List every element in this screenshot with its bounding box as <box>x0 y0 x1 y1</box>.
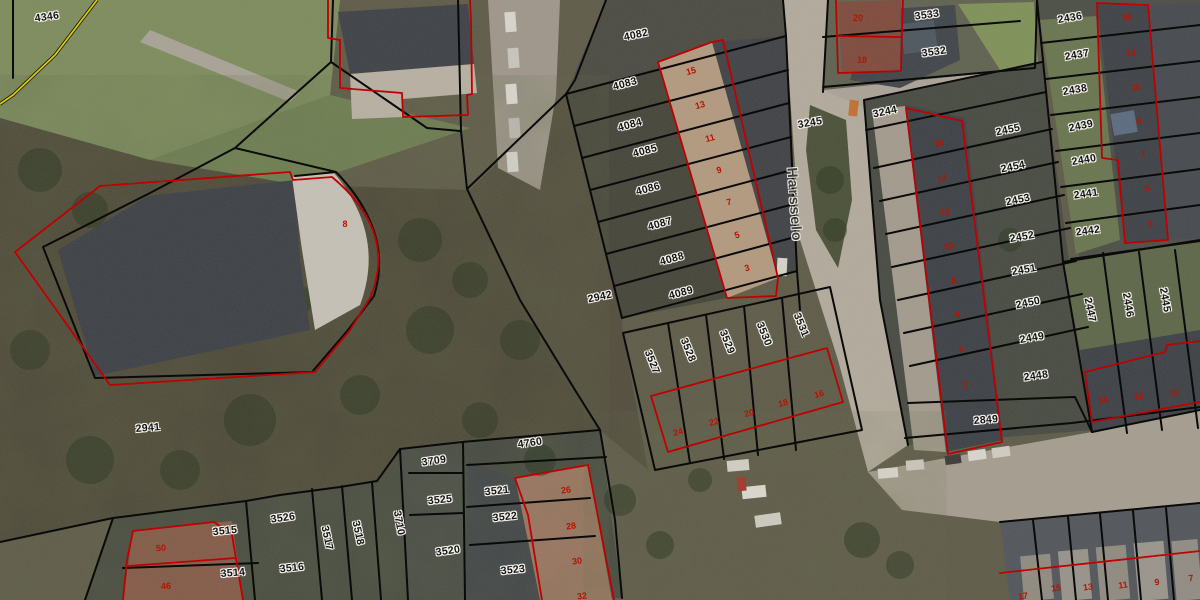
cadastral-map-view[interactable]: 4346408240834084408540864087408840892942… <box>0 0 1200 600</box>
aerial-base-layer <box>0 0 1200 600</box>
